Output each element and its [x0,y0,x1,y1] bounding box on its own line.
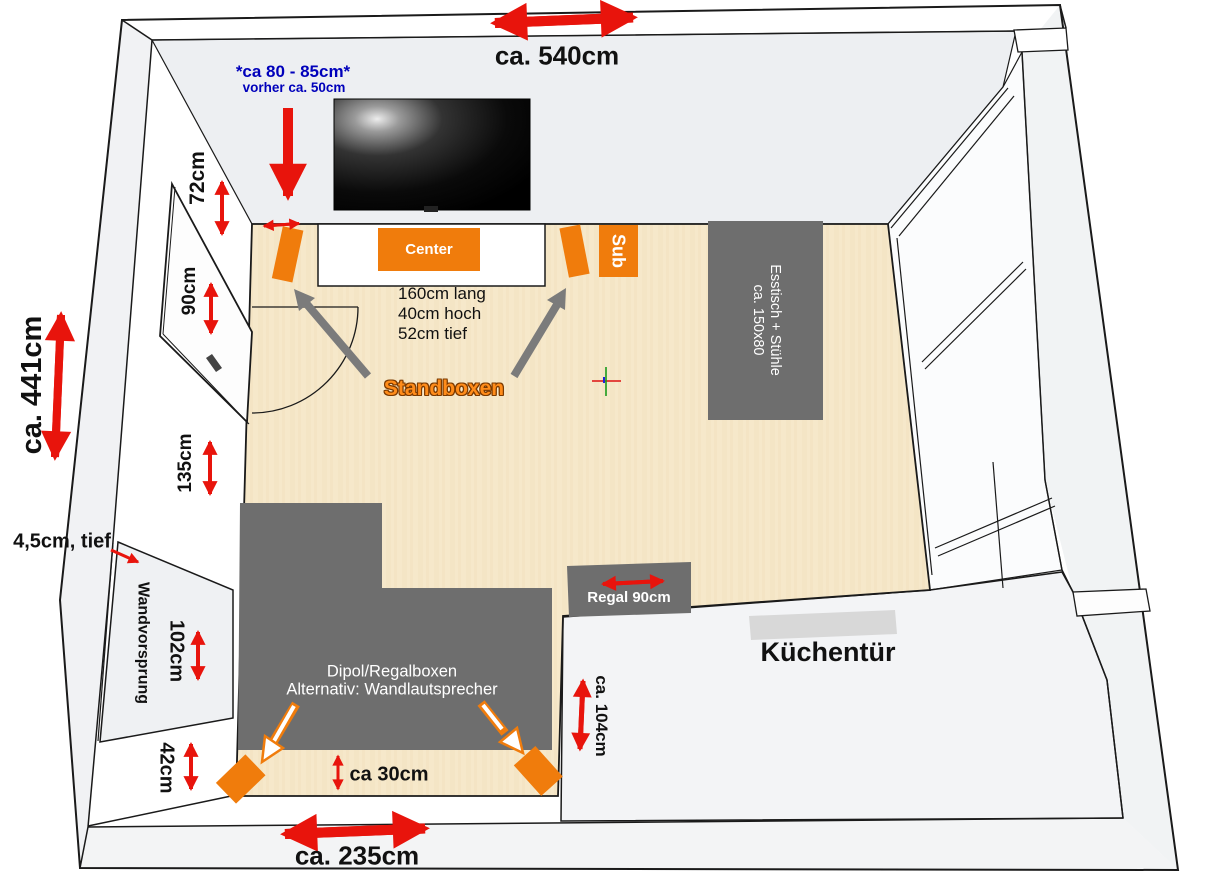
dim-label-235: ca. 235cm [295,842,419,869]
lowboard-spec-height: 40cm hoch [398,304,486,324]
dim-arrow-235-l [285,829,425,835]
dim-label-30: ca 30cm [350,765,429,786]
tv-screen [334,99,530,210]
shelf-label: Regal 90cm [587,590,670,606]
label-wall-protrusion: Wandvorsprung [134,582,151,704]
center-speaker-label: Center [378,228,480,271]
dim-label-104: ca. 104cm [592,675,610,756]
dim-arrow-540-left [495,18,633,24]
rear-speaker-note-line2: Alternativ: Wandlautsprecher [286,681,497,699]
window-sill-piece [1073,589,1150,616]
rear-speaker-note-line1: Dipol/Regalboxen [286,664,497,682]
dim-label-42: 42cm [156,742,177,793]
wall-pillar-cap [1014,28,1068,52]
subwoofer-label: Sub [609,234,628,268]
note-niche-depth: 4,5cm, tief [13,532,111,553]
dim-label-72: 72cm [187,151,209,205]
dim-label-135: 135cm [176,433,196,492]
dim-label-441: ca. 441cm [17,316,47,455]
kitchen-door-label: Küchentür [761,638,896,666]
note-tv-offset: *ca 80 - 85cm* [236,63,350,81]
dim-arrow-104-u [580,681,583,749]
rear-speaker-note: Dipol/Regalboxen Alternativ: Wandlautspr… [286,664,497,699]
dining-table-line2: ca. 150x80 [749,264,766,376]
dining-table-line1: Esstisch + Stühle [766,264,783,376]
lowboard-spec-length: 160cm lang [398,284,486,304]
dim-arrow-441-u [55,315,61,457]
dim-label-540: ca. 540cm [495,42,619,69]
left-door-leaf [160,184,252,422]
lowboard-spec-depth: 52cm tief [398,324,486,344]
dim-label-90: 90cm [180,267,200,316]
dim-label-102: 102cm [166,620,187,682]
tv-stand [424,206,438,212]
note-tv-offset-prev: vorher ca. 50cm [243,81,346,95]
floorplan-page: ca. 540cm *ca 80 - 85cm* vorher ca. 50cm… [0,0,1208,890]
lowboard-specs: 160cm lang 40cm hoch 52cm tief [398,284,486,344]
dining-table-label: Esstisch + Stühle ca. 150x80 [749,264,783,376]
standboxen-label: Standboxen [384,378,504,400]
